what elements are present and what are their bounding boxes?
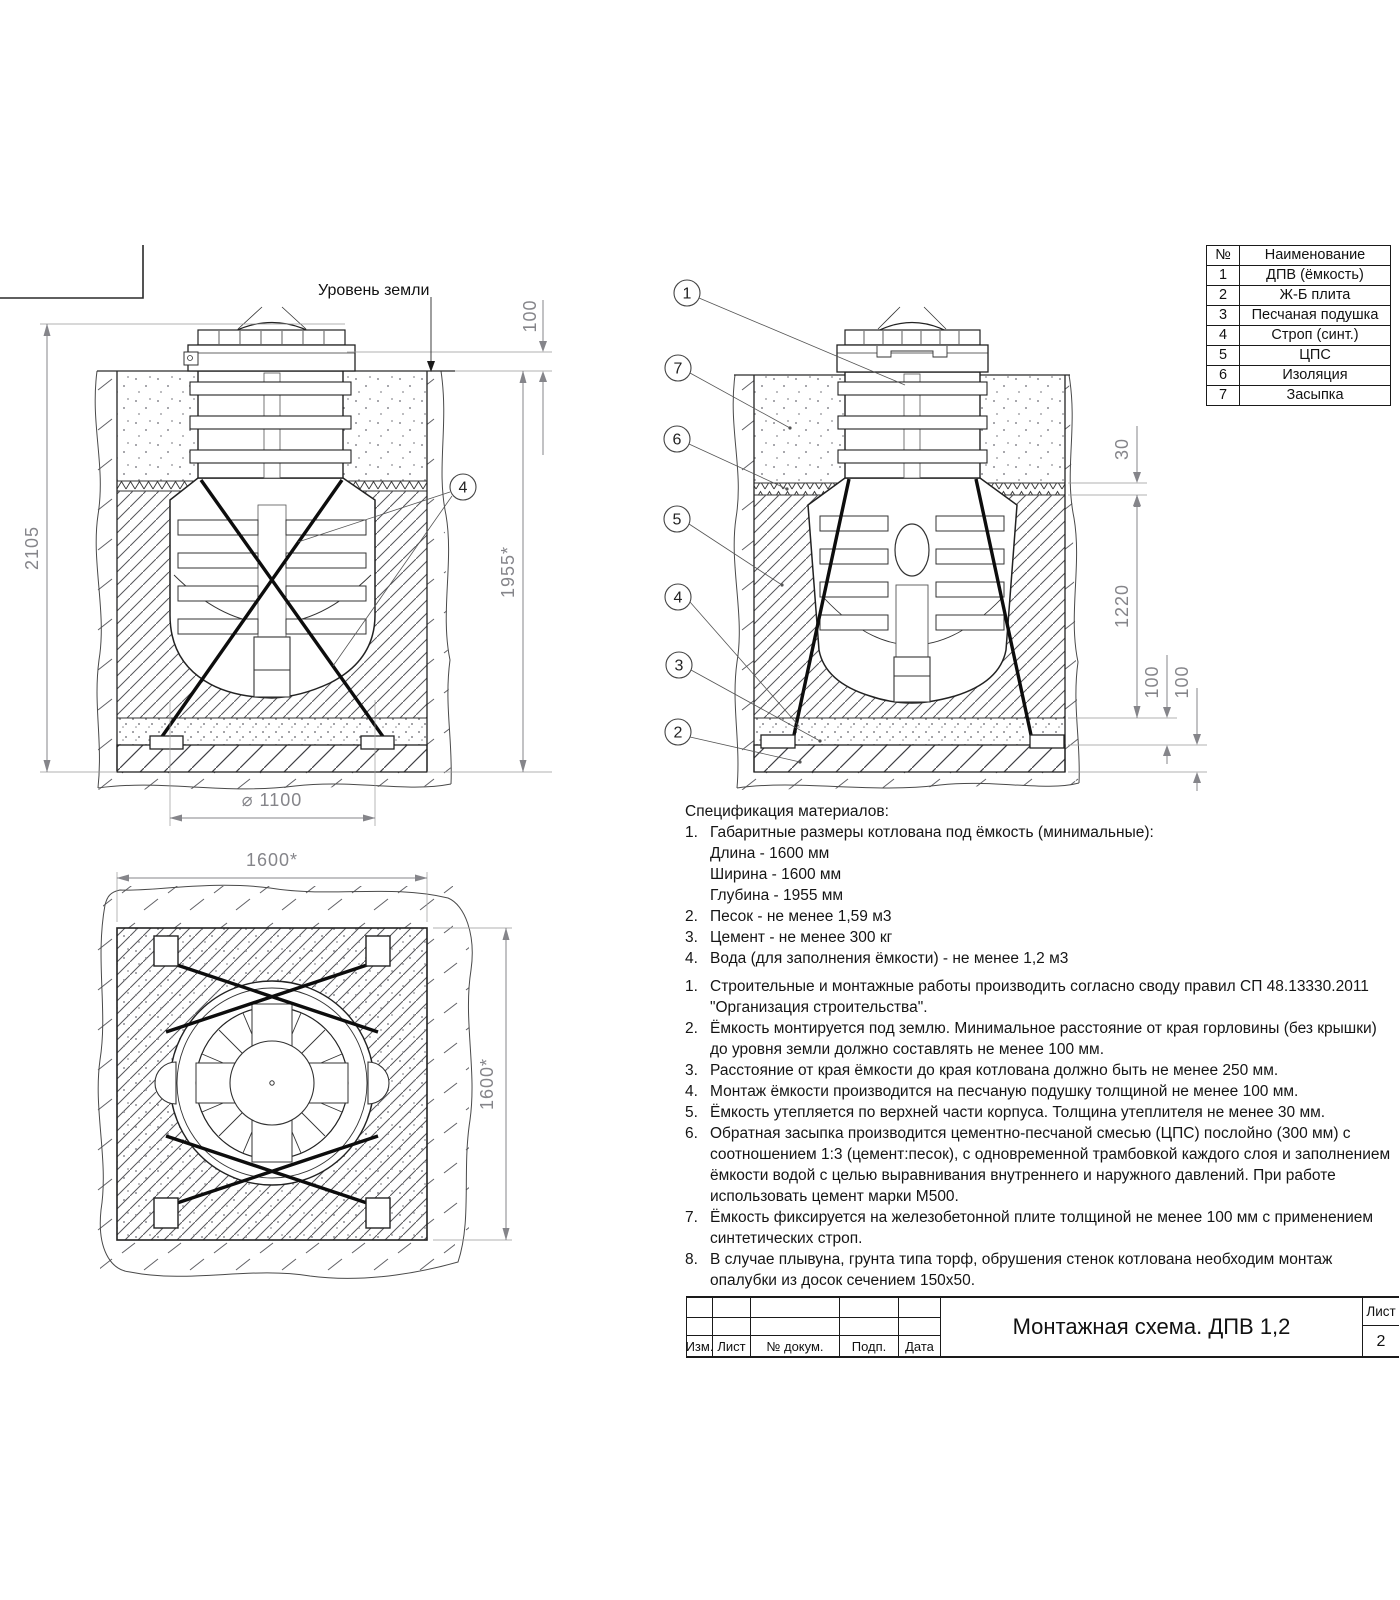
spec-note-item: 3. Расстояние от края ёмкости до края ко… — [685, 1060, 1393, 1081]
anchor-nw — [154, 936, 178, 966]
ground-level-label: Уровень земли — [318, 282, 429, 299]
spec-material-item: 4. Вода (для заполнения ёмкости) - не ме… — [685, 948, 1393, 969]
spec-sub-line: Длина - 1600 мм — [685, 843, 1393, 864]
item-number: 7. — [685, 1207, 710, 1249]
callout-4-label: 4 — [459, 480, 468, 497]
callout-1-label: 1 — [683, 286, 692, 303]
part-name: Засыпка — [1240, 386, 1391, 406]
left-section-view: 2105 1955* 100 ⌀ 1100 Уровень земли 4 — [0, 225, 580, 865]
title-block: Изм. Лист № докум. Подп. Дата Монтажная … — [686, 1296, 1399, 1358]
anchor-ne — [366, 936, 390, 966]
installation-notes: 1. Строительные и монтажные работы произ… — [685, 976, 1393, 1291]
table-row: 2Ж-Б плита — [1207, 286, 1391, 306]
tank-body — [808, 478, 1017, 703]
tank-lid — [837, 307, 988, 372]
callout-6-label: 6 — [673, 432, 682, 449]
item-text: Габаритные размеры котлована под ёмкость… — [710, 822, 1393, 843]
cover-center — [230, 1041, 314, 1125]
item-number: 5. — [685, 1102, 710, 1123]
table-row: 4Строп (синт.) — [1207, 326, 1391, 346]
item-number: 6. — [685, 1123, 710, 1207]
item-number: 2. — [685, 1018, 710, 1060]
item-number: 2. — [685, 906, 710, 927]
sheet-number: 2 — [1363, 1326, 1399, 1357]
materials-specification: Спецификация материалов: 1. Габаритные р… — [685, 801, 1393, 1291]
item-text: Цемент - не менее 300 кг — [710, 927, 1393, 948]
anchor-sw — [154, 1198, 178, 1228]
spec-note-item: 5. Ёмкость утепляется по верхней части к… — [685, 1102, 1393, 1123]
drawing-title: Монтажная схема. ДПВ 1,2 — [941, 1298, 1362, 1356]
inlet-hole — [895, 524, 929, 576]
item-text: Вода (для заполнения ёмкости) - не менее… — [710, 948, 1393, 969]
strap-anchor-left — [761, 735, 795, 748]
backfill-right — [980, 375, 1065, 483]
callout-2-label: 2 — [674, 725, 683, 742]
part-num: 6 — [1207, 366, 1240, 386]
backfill-left — [754, 375, 845, 483]
strap-anchor-left — [150, 736, 183, 749]
dim-body-height: 1220 — [1112, 584, 1132, 628]
parts-table-header: № Наименование — [1207, 246, 1391, 266]
bottom-support — [254, 637, 290, 697]
table-row: 7Засыпка — [1207, 386, 1391, 406]
frame-corner — [0, 245, 143, 298]
sheet-cell: Лист 2 — [1362, 1298, 1399, 1356]
part-name: ЦПС — [1240, 346, 1391, 366]
spec-material-item: 3. Цемент - не менее 300 кг — [685, 927, 1393, 948]
backfill-left — [117, 371, 198, 481]
spec-sub-line: Глубина - 1955 мм — [685, 885, 1393, 906]
spec-note-item: 4. Монтаж ёмкости производится на песчан… — [685, 1081, 1393, 1102]
sand-pad — [754, 718, 1065, 745]
item-number: 3. — [685, 1060, 710, 1081]
col-izm: Изм. — [687, 1336, 713, 1356]
anchor-se — [366, 1198, 390, 1228]
item-number: 1. — [685, 822, 710, 843]
table-row: 6Изоляция — [1207, 366, 1391, 386]
callout-3-label: 3 — [675, 658, 684, 675]
dim-total-height: 2105 — [22, 526, 42, 570]
dim-slab-thickness: 100 — [1172, 665, 1192, 698]
item-text: Песок - не менее 1,59 м3 — [710, 906, 1393, 927]
item-text: Расстояние от края ёмкости до края котло… — [710, 1060, 1393, 1081]
spec-note-item: 2. Ёмкость монтируется под землю. Минима… — [685, 1018, 1393, 1060]
callout-7-label: 7 — [674, 361, 683, 378]
col-date: Дата — [899, 1336, 941, 1356]
title-block-revision-table: Изм. Лист № докум. Подп. Дата — [687, 1298, 941, 1356]
item-number: 4. — [685, 1081, 710, 1102]
dim-diameter: ⌀ 1100 — [242, 790, 303, 810]
table-row: 5ЦПС — [1207, 346, 1391, 366]
part-name: Ж-Б плита — [1240, 286, 1391, 306]
concrete-slab — [754, 745, 1065, 772]
item-number: 4. — [685, 948, 710, 969]
part-name: ДПВ (ёмкость) — [1240, 266, 1391, 286]
spec-title: Спецификация материалов: — [685, 801, 1393, 822]
item-text: Ёмкость монтируется под землю. Минимальн… — [710, 1018, 1393, 1060]
spec-note-item: 6. Обратная засыпка производится цементн… — [685, 1123, 1393, 1207]
item-number: 8. — [685, 1249, 710, 1291]
col-list: Лист — [713, 1336, 751, 1356]
top-plan-view: 1600* 1600* — [50, 828, 530, 1288]
spec-note-item: 1. Строительные и монтажные работы произ… — [685, 976, 1393, 1018]
tank-body — [170, 478, 375, 698]
drawing-sheet: 2105 1955* 100 ⌀ 1100 Уровень земли 4 — [0, 0, 1400, 1600]
right-view-dimensions: 30 1220 100 100 — [1068, 426, 1207, 791]
part-num: 1 — [1207, 266, 1240, 286]
neck-collar — [188, 345, 355, 371]
bottom-support — [894, 657, 930, 702]
spec-note-item: 7. Ёмкость фиксируется на железобетонной… — [685, 1207, 1393, 1249]
dim-sand-thickness: 100 — [1142, 665, 1162, 698]
part-name: Песчаная подушка — [1240, 306, 1391, 326]
part-num: 7 — [1207, 386, 1240, 406]
item-number: 3. — [685, 927, 710, 948]
right-section-view: 1 7 6 5 4 3 2 30 1220 100 — [600, 240, 1250, 800]
part-name: Строп (синт.) — [1240, 326, 1391, 346]
tank-neck — [190, 371, 351, 478]
item-text: Ёмкость фиксируется на железобетонной пл… — [710, 1207, 1393, 1249]
dim-pit-length: 1600* — [477, 1058, 497, 1110]
item-text: Ёмкость утепляется по верхней части корп… — [710, 1102, 1393, 1123]
strap-anchor-right — [361, 736, 394, 749]
part-num: 4 — [1207, 326, 1240, 346]
spec-note-item: 8. В случае плывуна, грунта типа торф, о… — [685, 1249, 1393, 1291]
sheet-label: Лист — [1363, 1298, 1399, 1326]
parts-header-name: Наименование — [1240, 246, 1391, 266]
dim-insulation: 30 — [1112, 438, 1132, 460]
part-num: 5 — [1207, 346, 1240, 366]
backfill-right — [343, 371, 427, 481]
parts-header-num: № — [1207, 246, 1240, 266]
table-row: 3Песчаная подушка — [1207, 306, 1391, 326]
item-text: В случае плывуна, грунта типа торф, обру… — [710, 1249, 1393, 1291]
part-num: 3 — [1207, 306, 1240, 326]
part-name: Изоляция — [1240, 366, 1391, 386]
col-doc: № докум. — [751, 1336, 840, 1356]
spec-sub-line: Ширина - 1600 мм — [685, 864, 1393, 885]
dim-pit-width: 1600* — [246, 850, 298, 870]
leader-arrow — [427, 361, 435, 372]
item-number: 1. — [685, 976, 710, 1018]
spec-material-item: 2. Песок - не менее 1,59 м3 — [685, 906, 1393, 927]
spec-material-item: 1. Габаритные размеры котлована под ёмко… — [685, 822, 1393, 843]
tank-lid — [184, 307, 355, 371]
tank-neck — [838, 372, 987, 478]
table-row: 1ДПВ (ёмкость) — [1207, 266, 1391, 286]
strap-anchor-right — [1030, 735, 1064, 748]
item-text: Монтаж ёмкости производится на песчаную … — [710, 1081, 1393, 1102]
item-text: Строительные и монтажные работы производ… — [710, 976, 1393, 1018]
dim-pit-depth: 1955* — [498, 546, 518, 598]
parts-table: № Наименование 1ДПВ (ёмкость) 2Ж-Б плита… — [1206, 245, 1391, 406]
item-text: Обратная засыпка производится цементно-п… — [710, 1123, 1393, 1207]
dim-neck-to-ground: 100 — [520, 299, 540, 332]
part-num: 2 — [1207, 286, 1240, 306]
callout-5-label: 5 — [673, 512, 682, 529]
col-sign: Подп. — [840, 1336, 899, 1356]
callout-4-label: 4 — [674, 590, 683, 607]
